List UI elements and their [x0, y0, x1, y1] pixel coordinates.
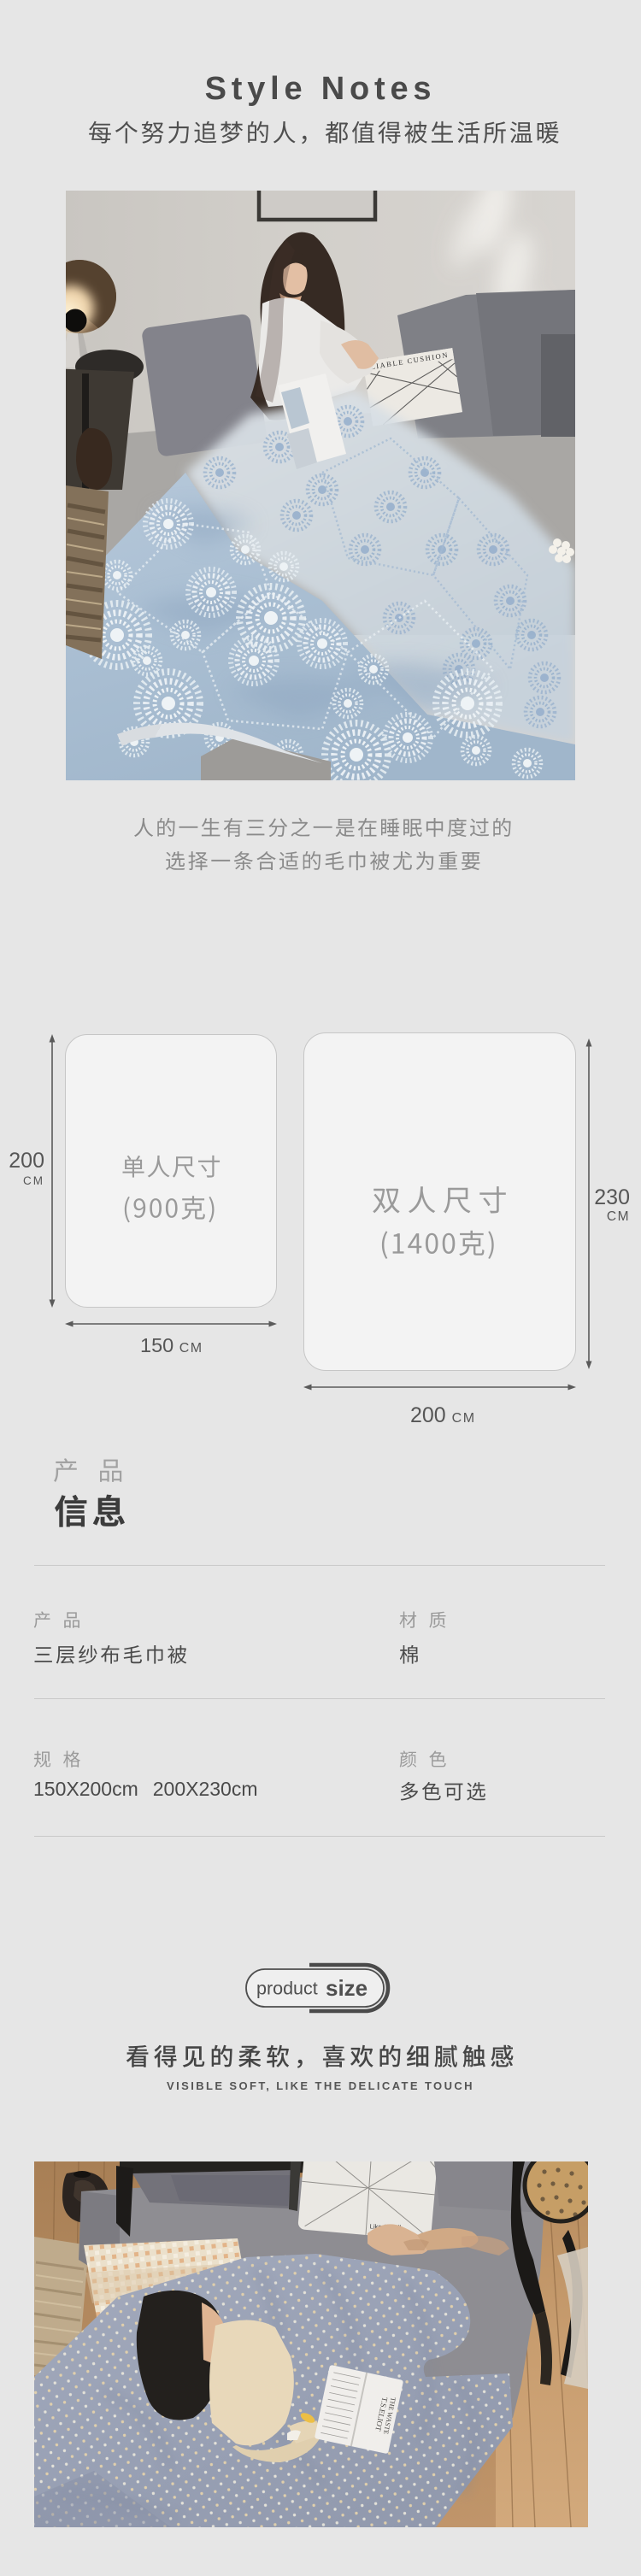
svg-text:product: product: [256, 1979, 318, 1999]
svg-text:size: size: [326, 1975, 368, 2001]
